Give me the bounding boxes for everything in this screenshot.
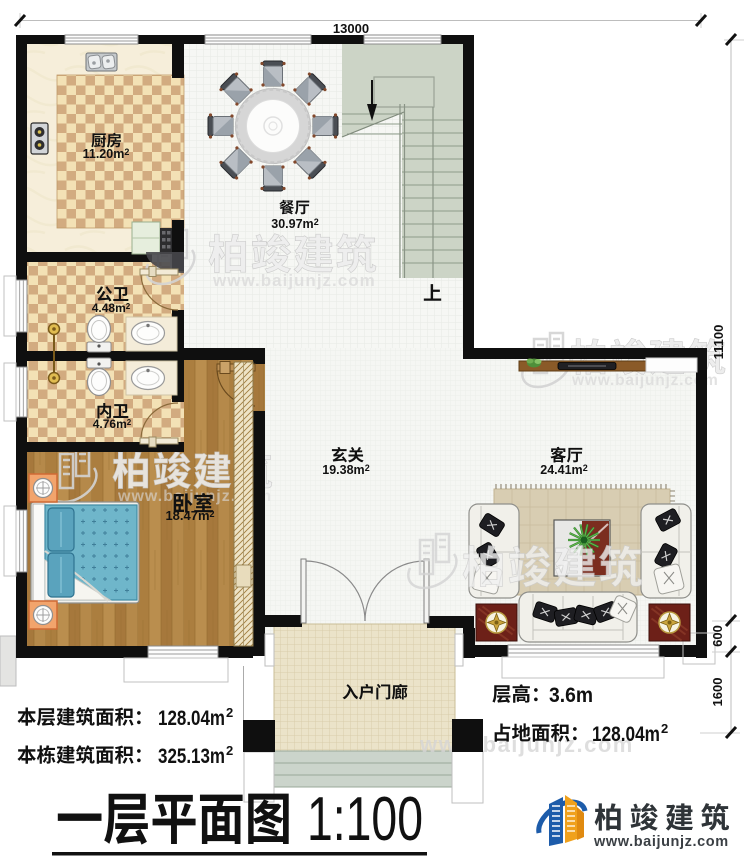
svg-text:18.47m2: 18.47m2: [165, 508, 214, 523]
svg-text:11100: 11100: [711, 325, 726, 360]
svg-text:128.04m: 128.04m: [158, 707, 225, 730]
svg-text:4.76m2: 4.76m2: [93, 417, 132, 431]
svg-text:1600: 1600: [710, 678, 725, 707]
svg-text:2: 2: [226, 743, 233, 758]
svg-text:19.38m2: 19.38m2: [322, 463, 369, 477]
svg-text:www.baijunjz.com: www.baijunjz.com: [593, 834, 729, 850]
svg-text:1:100: 1:100: [307, 785, 423, 854]
svg-text:24.41m2: 24.41m2: [540, 463, 587, 477]
svg-text:30.97m2: 30.97m2: [271, 217, 318, 231]
svg-text:www.baijunjz.com: www.baijunjz.com: [212, 271, 376, 290]
svg-text:11.20m2: 11.20m2: [83, 147, 130, 161]
svg-text:2: 2: [226, 705, 233, 720]
svg-text:3.6m: 3.6m: [549, 684, 593, 707]
svg-text:128.04m: 128.04m: [592, 723, 660, 746]
svg-text:2: 2: [661, 721, 668, 736]
svg-text:325.13m: 325.13m: [158, 745, 225, 768]
svg-text:600: 600: [710, 625, 725, 647]
svg-text:4.48m2: 4.48m2: [92, 301, 131, 315]
svg-text:13000: 13000: [333, 21, 369, 36]
